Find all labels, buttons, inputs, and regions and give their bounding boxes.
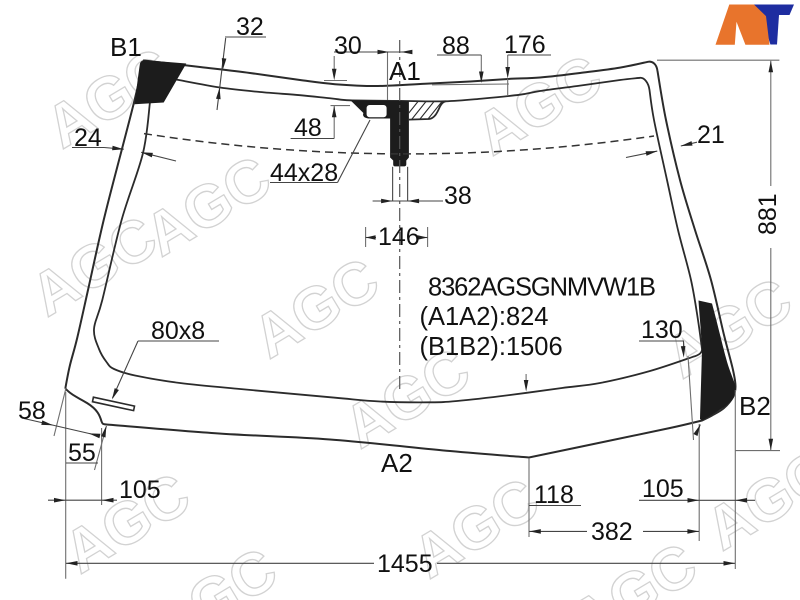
svg-text:80x8: 80x8 xyxy=(151,317,205,345)
svg-text:B1: B1 xyxy=(110,32,142,62)
svg-text:1455: 1455 xyxy=(377,550,433,578)
svg-text:118: 118 xyxy=(534,481,574,509)
svg-text:AGC: AGC xyxy=(559,530,708,600)
svg-text:105: 105 xyxy=(119,476,161,504)
svg-text:382: 382 xyxy=(591,518,633,546)
svg-text:AGC: AGC xyxy=(139,535,288,600)
svg-text:30: 30 xyxy=(334,32,362,60)
svg-text:146: 146 xyxy=(378,223,420,251)
svg-text:(A1A2):824: (A1A2):824 xyxy=(420,303,549,331)
svg-text:32: 32 xyxy=(236,13,264,41)
svg-text:B2: B2 xyxy=(739,391,771,421)
svg-text:A2: A2 xyxy=(381,448,413,478)
svg-text:38: 38 xyxy=(444,182,472,210)
svg-text:24: 24 xyxy=(74,124,102,152)
svg-text:21: 21 xyxy=(697,121,725,149)
svg-text:48: 48 xyxy=(294,114,322,142)
svg-text:(B1B2):1506: (B1B2):1506 xyxy=(420,333,563,361)
svg-text:A1: A1 xyxy=(389,56,421,86)
svg-text:44x28: 44x28 xyxy=(270,159,338,187)
svg-text:8362AGSGNMVW1B: 8362AGSGNMVW1B xyxy=(428,274,655,302)
svg-text:55: 55 xyxy=(68,439,96,467)
svg-text:176: 176 xyxy=(504,31,546,59)
svg-text:58: 58 xyxy=(18,397,46,425)
svg-text:105: 105 xyxy=(642,475,684,503)
svg-text:881: 881 xyxy=(754,193,782,235)
svg-text:130: 130 xyxy=(641,316,683,344)
svg-text:AGC: AGC xyxy=(241,245,390,371)
svg-text:88: 88 xyxy=(442,32,470,60)
